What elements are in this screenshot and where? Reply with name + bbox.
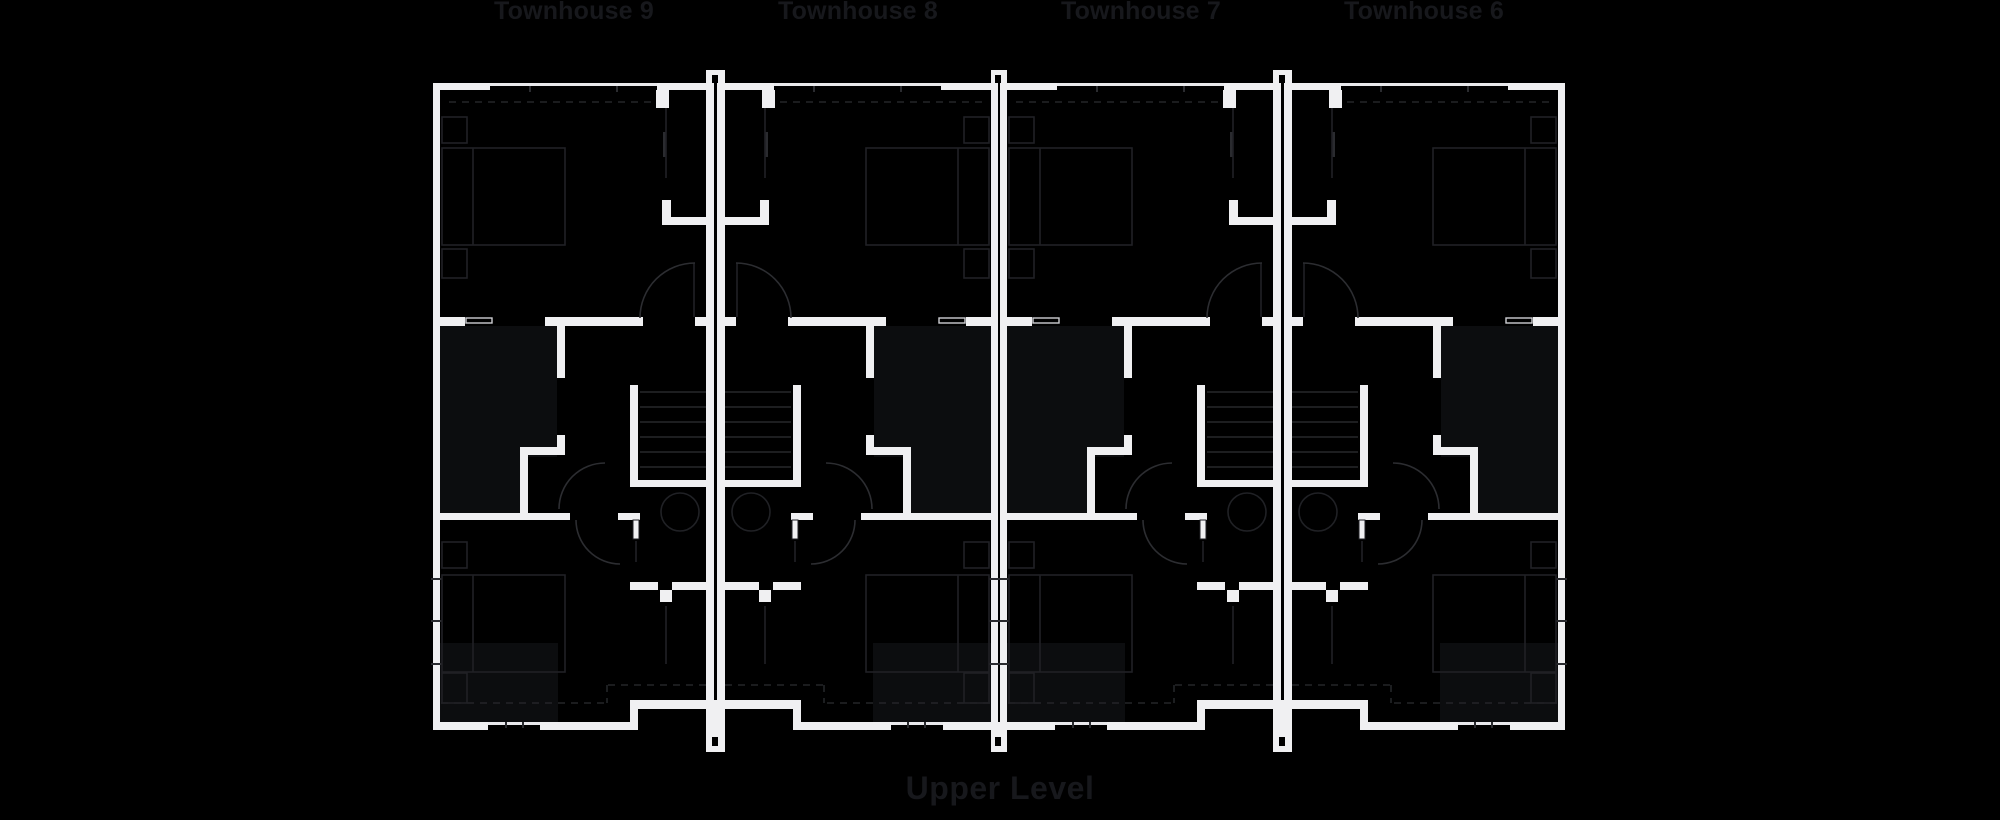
unit-label-townhouse-8: Townhouse 8	[778, 0, 938, 26]
unit-townhouse-6	[1284, 83, 1567, 745]
unit-label-townhouse-7: Townhouse 7	[1061, 0, 1221, 26]
floor-plan-canvas: Townhouse 9 Townhouse 8 Townhouse 7 Town…	[0, 0, 2000, 820]
unit-label-townhouse-6: Townhouse 6	[1344, 0, 1504, 26]
floor-plan-drawing	[0, 0, 2000, 820]
unit-townhouse-8	[717, 83, 1000, 745]
unit-label-townhouse-9: Townhouse 9	[494, 0, 654, 26]
level-label: Upper Level	[906, 770, 1095, 807]
unit-townhouse-7	[998, 83, 1281, 745]
unit-townhouse-9	[431, 83, 714, 745]
